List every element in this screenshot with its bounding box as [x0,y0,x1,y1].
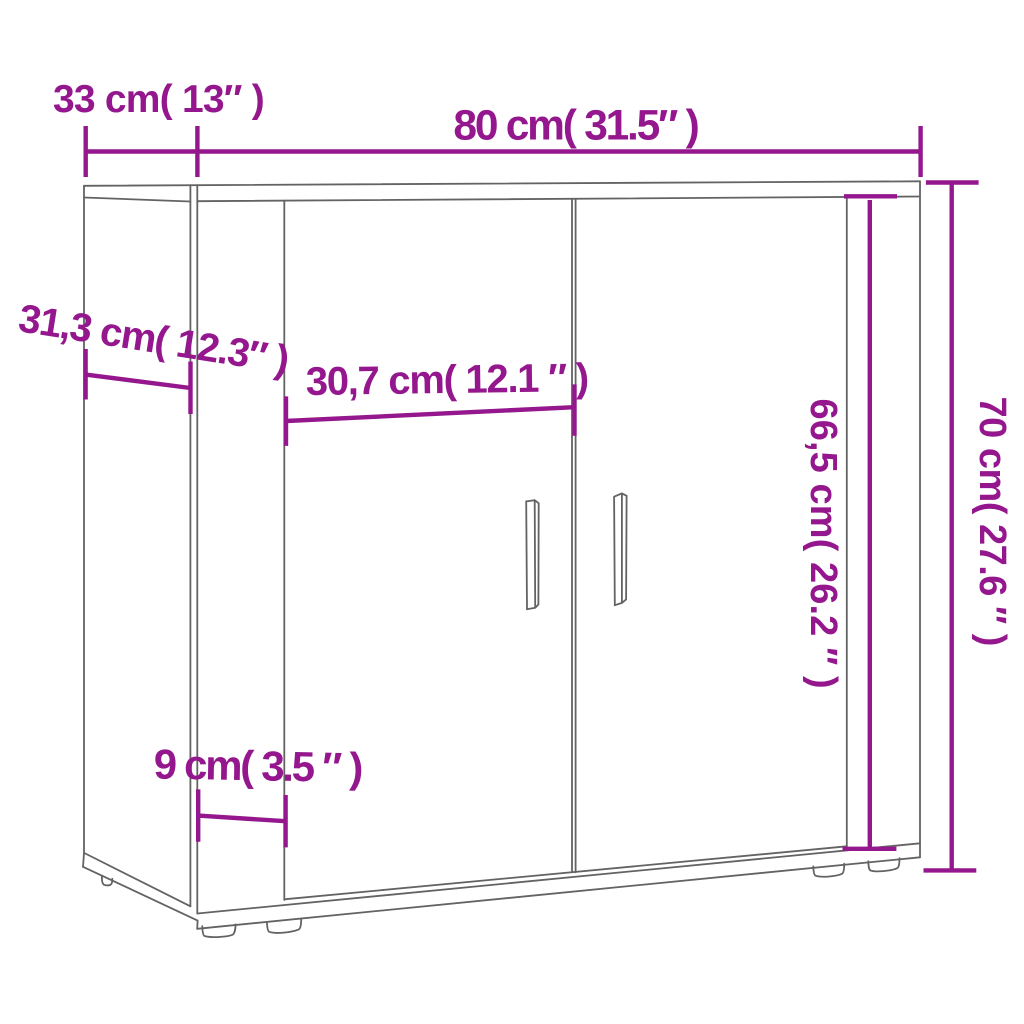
svg-text:33 cm( 13″ ): 33 cm( 13″ ) [53,78,264,121]
svg-text:9 cm( 3.5 ″ ): 9 cm( 3.5 ″ ) [153,741,361,792]
svg-text:66,5 cm( 26.2 ″ ): 66,5 cm( 26.2 ″ ) [802,399,844,689]
svg-text:30,7 cm( 12.1 ″ ): 30,7 cm( 12.1 ″ ) [306,356,589,404]
svg-text:80 cm( 31.5″ ): 80 cm( 31.5″ ) [453,103,698,150]
svg-text:31,3 cm( 12.3″ ): 31,3 cm( 12.3″ ) [16,296,292,382]
svg-text:70 cm( 27.6 ″ ): 70 cm( 27.6 ″ ) [971,397,1013,646]
